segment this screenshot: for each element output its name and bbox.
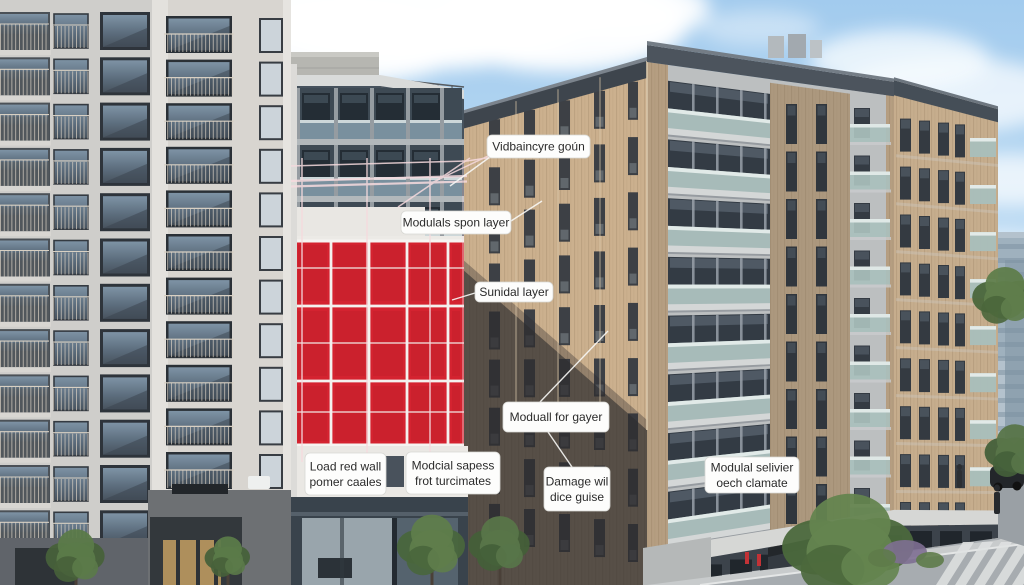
svg-text:Modcial sapess: Modcial sapess <box>412 458 495 472</box>
svg-text:Modulal selivier: Modulal selivier <box>711 460 794 474</box>
svg-text:Moduall for gayer: Moduall for gayer <box>510 410 603 424</box>
svg-text:Load red wall: Load red wall <box>310 459 381 473</box>
svg-text:oech clamate: oech clamate <box>716 476 788 490</box>
svg-text:dice guise: dice guise <box>550 490 604 504</box>
svg-text:pomer caales: pomer caales <box>309 475 381 489</box>
svg-text:Vidbaincyre goún: Vidbaincyre goún <box>492 140 585 154</box>
svg-text:frot turcimates: frot turcimates <box>415 474 491 488</box>
svg-text:Damage wil: Damage wil <box>546 474 609 488</box>
svg-text:Sunidal layer: Sunidal layer <box>479 285 548 299</box>
svg-text:Modulals spon layer: Modulals spon layer <box>403 216 510 230</box>
